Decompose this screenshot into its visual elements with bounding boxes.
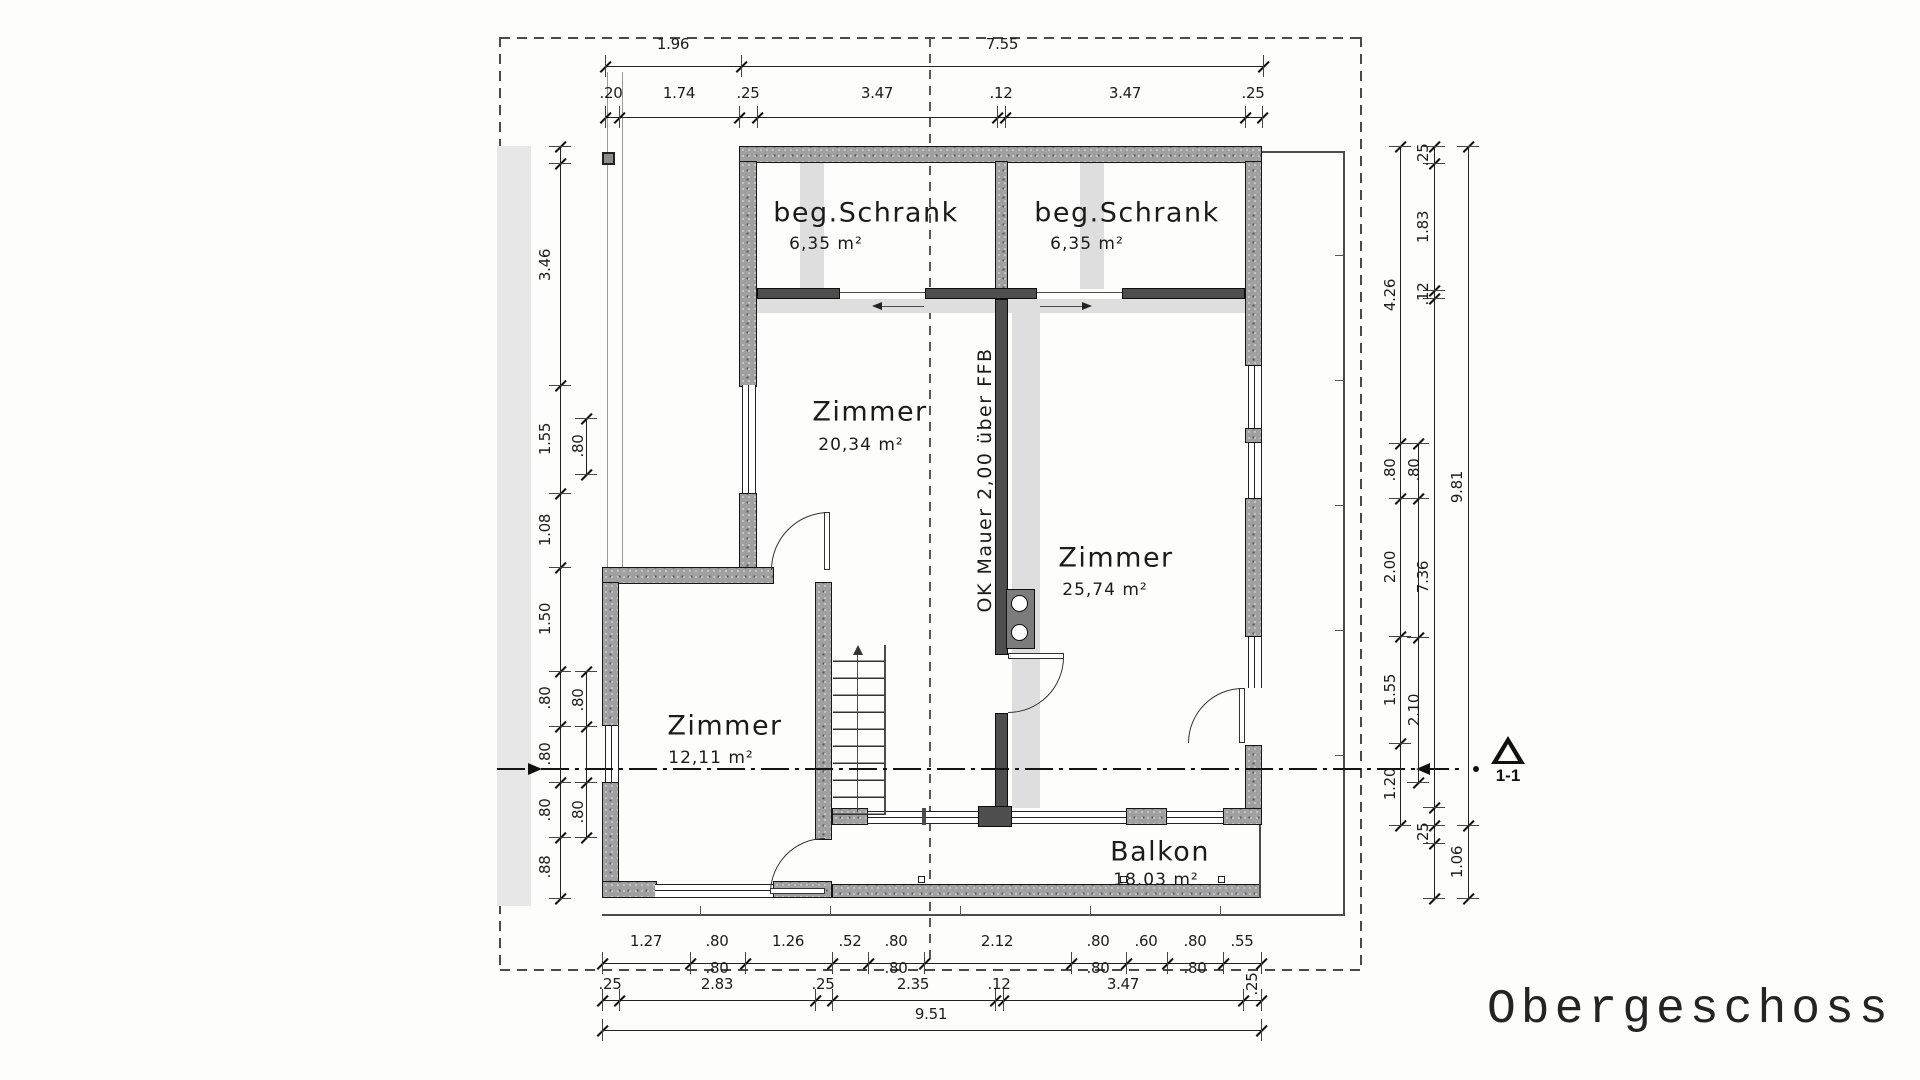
- window: [742, 385, 756, 493]
- dim-extension: [1261, 1019, 1262, 1041]
- dim-extension: [1407, 443, 1429, 444]
- dim-line: [605, 117, 1262, 118]
- dim-extension: [549, 837, 571, 838]
- flue-circle: [1011, 595, 1028, 612]
- eave-tick: [1335, 380, 1344, 381]
- dim-extension: [1457, 898, 1479, 899]
- arrow-left-icon: [872, 302, 882, 310]
- room-name-zimmer-25: Zimmer: [1058, 543, 1173, 574]
- wall-closet-divider: [995, 161, 1008, 289]
- legend-square: [602, 152, 615, 165]
- room-name-zimmer-20: Zimmer: [812, 397, 927, 428]
- dim-extension: [924, 952, 925, 974]
- dim-line: [602, 1030, 1261, 1031]
- dim-label: 1.83: [1414, 211, 1432, 243]
- dim-label: .20: [600, 84, 623, 102]
- dim-label: .80: [569, 435, 587, 458]
- dim-label: .25: [1414, 823, 1432, 846]
- dim-label: .25: [599, 975, 622, 993]
- dim-label: 1.06: [1448, 846, 1466, 878]
- dim-extension: [745, 952, 746, 974]
- dim-line: [1400, 146, 1401, 825]
- dim-extension: [868, 952, 869, 974]
- wall-closet-south-1: [757, 288, 840, 299]
- dim-extension: [1423, 807, 1445, 808]
- dim-extension: [1167, 952, 1168, 974]
- dim-label: 1.27: [630, 932, 662, 950]
- dim-label: 2.12: [981, 932, 1013, 950]
- dim-extension: [1261, 952, 1262, 974]
- floor-plan-canvas: 1-1 OK Mauer 2,00 über FFB beg.Schrank6,…: [0, 0, 1920, 1080]
- staircase: [833, 645, 884, 815]
- dim-label: 1.55: [536, 423, 554, 455]
- dim-label: .12: [1414, 283, 1432, 306]
- dim-extension: [1263, 55, 1264, 77]
- room-name-schrank-right: beg.Schrank: [1034, 198, 1219, 229]
- dim-label: .60: [1135, 932, 1158, 950]
- room-name-schrank-left: beg.Schrank: [773, 198, 958, 229]
- door-arc: [770, 838, 825, 893]
- sliding-door-line: [840, 292, 925, 293]
- dim-label: 3.46: [536, 249, 554, 281]
- dim-line: [602, 963, 1261, 964]
- dim-extension: [549, 163, 571, 164]
- dim-extension: [549, 567, 571, 568]
- dim-extension: [549, 671, 571, 672]
- wall-west-upper: [739, 161, 757, 387]
- dim-label: .80: [536, 743, 554, 766]
- roof-outline-right: [1360, 37, 1362, 971]
- dim-line: [1468, 146, 1469, 898]
- dim-extension: [832, 952, 833, 974]
- dim-extension: [605, 106, 606, 128]
- dim-line: [1418, 443, 1419, 782]
- dim-label: .55: [1231, 932, 1254, 950]
- dim-label: .12: [990, 84, 1013, 102]
- wall-east-3: [1245, 498, 1262, 637]
- door-arc: [771, 512, 829, 570]
- room-area-balkon: 18.03 m²: [1113, 870, 1198, 890]
- dim-label: .80: [1405, 459, 1423, 482]
- dim-extension: [575, 671, 597, 672]
- window: [1248, 637, 1262, 688]
- left-margin-strip: [497, 146, 531, 906]
- dim-line: [605, 66, 1263, 67]
- roof-outline-bottom: [500, 969, 1362, 971]
- dim-label: .80: [706, 932, 729, 950]
- dim-extension: [1261, 989, 1262, 1011]
- window: [1248, 443, 1262, 498]
- dim-label: .52: [839, 932, 862, 950]
- eave-tick: [960, 906, 961, 915]
- dim-extension: [549, 782, 571, 783]
- wall-closet-south-3: [1122, 288, 1245, 299]
- dim-label: .80: [536, 687, 554, 710]
- dim-label: .25: [1414, 144, 1432, 167]
- dim-label: .80: [1381, 459, 1399, 482]
- eave-tick: [700, 906, 701, 915]
- dim-extension: [1457, 825, 1479, 826]
- dim-label: 3.47: [1109, 84, 1141, 102]
- dim-extension: [1407, 498, 1429, 499]
- dim-extension: [1389, 825, 1411, 826]
- door-leaf: [1008, 653, 1064, 659]
- dim-label: 1.08: [536, 514, 554, 546]
- dim-extension: [997, 106, 998, 128]
- dim-extension: [619, 106, 620, 128]
- eave-tick: [1335, 755, 1344, 756]
- dim-extension: [575, 782, 597, 783]
- dim-extension: [1005, 106, 1006, 128]
- dim-extension: [1423, 898, 1445, 899]
- dim-extension: [575, 726, 597, 727]
- dim-extension: [1262, 106, 1263, 128]
- dim-extension: [1407, 637, 1429, 638]
- dim-extension: [1389, 146, 1411, 147]
- dim-label: .25: [737, 84, 760, 102]
- witness-line: [607, 72, 608, 567]
- dim-extension: [1407, 782, 1429, 783]
- room-name-balkon: Balkon: [1110, 837, 1210, 868]
- dim-extension: [690, 952, 691, 974]
- window: [655, 884, 775, 898]
- dim-label: 3.47: [861, 84, 893, 102]
- eave-line-top: [1262, 151, 1343, 153]
- eave-tick: [830, 906, 831, 915]
- dim-extension: [549, 726, 571, 727]
- eave-tick: [1335, 255, 1344, 256]
- dim-label: 7.55: [986, 35, 1018, 53]
- dim-extension: [549, 493, 571, 494]
- witness-line: [622, 72, 623, 567]
- dim-extension: [575, 474, 597, 475]
- dim-label: 1.26: [772, 932, 804, 950]
- dim-extension: [1457, 146, 1479, 147]
- section-line: [497, 768, 1460, 770]
- stair-edge: [884, 645, 886, 815]
- dim-extension: [549, 898, 571, 899]
- door-arc: [1008, 657, 1064, 713]
- eave-tick: [1220, 906, 1221, 915]
- door-arc: [1188, 688, 1243, 743]
- wall-bay-east: [815, 582, 832, 840]
- dim-label: 9.81: [1448, 471, 1466, 503]
- dim-label: 1.55: [1381, 674, 1399, 706]
- eave-tick: [1335, 630, 1344, 631]
- dim-label: 7.36: [1414, 561, 1432, 593]
- sliding-door-line: [1037, 292, 1122, 293]
- flue-circle: [1011, 624, 1028, 641]
- dim-label: 2.35: [897, 975, 929, 993]
- window: [605, 726, 619, 782]
- section-label: 1-1: [1496, 766, 1521, 786]
- arrow-up-icon: [853, 645, 863, 655]
- dim-label: 2.10: [1405, 694, 1423, 726]
- door-leaf: [1239, 688, 1245, 743]
- eave-line-bottom: [602, 914, 1344, 916]
- railing-post: [1218, 876, 1225, 883]
- eave-line-right: [1343, 151, 1345, 916]
- dim-label: .25: [1243, 973, 1261, 996]
- room-area-zimmer-25: 25,74 m²: [1062, 580, 1147, 600]
- dim-extension: [739, 106, 740, 128]
- eave-tick: [1090, 906, 1091, 915]
- wall-bay-north: [602, 567, 774, 584]
- wall-south-dark-pier: [978, 806, 1012, 827]
- dim-label: 1.20: [1381, 768, 1399, 800]
- dim-extension: [602, 952, 603, 974]
- window: [1012, 811, 1126, 824]
- dim-label: 1.50: [536, 603, 554, 635]
- dim-line: [602, 1000, 1261, 1001]
- eave-tick: [1335, 505, 1344, 506]
- dim-label: .12: [988, 975, 1011, 993]
- stair-walk-line: [857, 652, 858, 812]
- dim-extension: [549, 385, 571, 386]
- wall-east-1: [1245, 161, 1262, 366]
- dim-line: [1434, 146, 1435, 898]
- shadow-band: [1012, 313, 1040, 808]
- dim-extension: [575, 837, 597, 838]
- dim-label: .25: [1242, 84, 1265, 102]
- dim-line: [560, 146, 561, 898]
- dim-label: .25: [812, 975, 835, 993]
- dim-extension: [549, 146, 571, 147]
- wall-closet-south-2: [925, 288, 1037, 299]
- dim-extension: [575, 418, 597, 419]
- wall-height-note: OK Mauer 2,00 über FFB: [974, 348, 996, 613]
- dim-extension: [1245, 106, 1246, 128]
- section-dot: [1473, 766, 1479, 772]
- roof-outline-top: [500, 37, 1362, 39]
- dim-label: 4.26: [1381, 279, 1399, 311]
- dim-extension: [1389, 743, 1411, 744]
- dim-label: .80: [569, 689, 587, 712]
- dim-label: .80: [1184, 932, 1207, 950]
- dim-label: 3.47: [1107, 975, 1139, 993]
- window: [1167, 811, 1223, 824]
- dim-extension: [605, 55, 606, 77]
- dim-extension: [602, 1019, 603, 1041]
- wall-bay-south-1: [602, 881, 657, 898]
- wall-south-pier: [1223, 808, 1262, 825]
- dim-label: .88: [536, 856, 554, 879]
- railing-post: [918, 876, 925, 883]
- room-area-schrank-left: 6,35 m²: [789, 234, 863, 254]
- dim-label: .80: [1184, 959, 1207, 977]
- room-area-schrank-right: 6,35 m²: [1050, 234, 1124, 254]
- wall-bay-west-1: [602, 582, 619, 726]
- door-leaf: [824, 512, 830, 570]
- door-swing-line: [1040, 306, 1084, 307]
- dim-label: 2.83: [701, 975, 733, 993]
- door-leaf: [770, 888, 825, 894]
- dim-label: .80: [536, 799, 554, 822]
- dim-extension: [1071, 952, 1072, 974]
- dim-label: 2.00: [1381, 551, 1399, 583]
- page-title: Obergeschoss: [1487, 983, 1893, 1037]
- dim-extension: [1223, 952, 1224, 974]
- dim-label: 1.74: [663, 84, 695, 102]
- wall-south-pier: [1126, 808, 1167, 825]
- dim-label: .80: [885, 932, 908, 950]
- window-mullion: [922, 808, 926, 825]
- window: [1248, 366, 1262, 428]
- room-area-zimmer-20: 20,34 m²: [818, 435, 903, 455]
- balcony-edge: [1259, 825, 1261, 898]
- room-area-zimmer-12: 12,11 m²: [668, 748, 753, 768]
- wall-central-lower: [995, 713, 1008, 809]
- dim-extension: [1126, 952, 1127, 974]
- door-swing-line: [880, 306, 924, 307]
- dim-extension: [741, 55, 742, 77]
- dim-label: 9.51: [915, 1005, 947, 1023]
- dim-label: .80: [1087, 932, 1110, 950]
- room-name-zimmer-12: Zimmer: [667, 711, 782, 742]
- dim-label: 1.96: [657, 35, 689, 53]
- arrow-right-icon: [1082, 302, 1092, 310]
- dim-extension: [757, 106, 758, 128]
- dim-label: .80: [569, 801, 587, 824]
- wall-east-2: [1245, 428, 1262, 443]
